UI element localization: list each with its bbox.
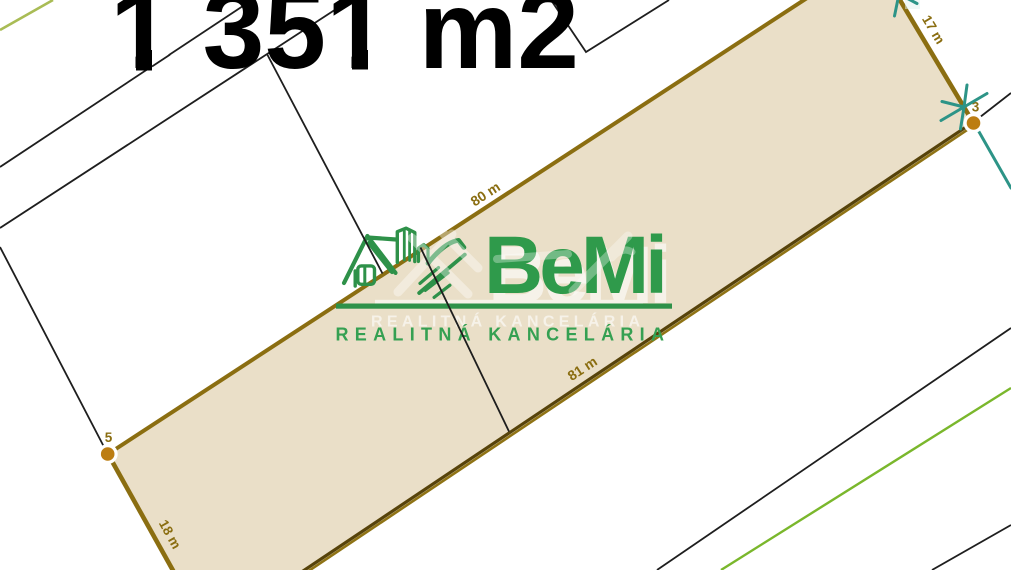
svg-text:5: 5: [105, 430, 113, 445]
svg-text:BeMi: BeMi: [484, 220, 664, 311]
svg-text:1 351 m2: 1 351 m2: [110, 0, 579, 92]
